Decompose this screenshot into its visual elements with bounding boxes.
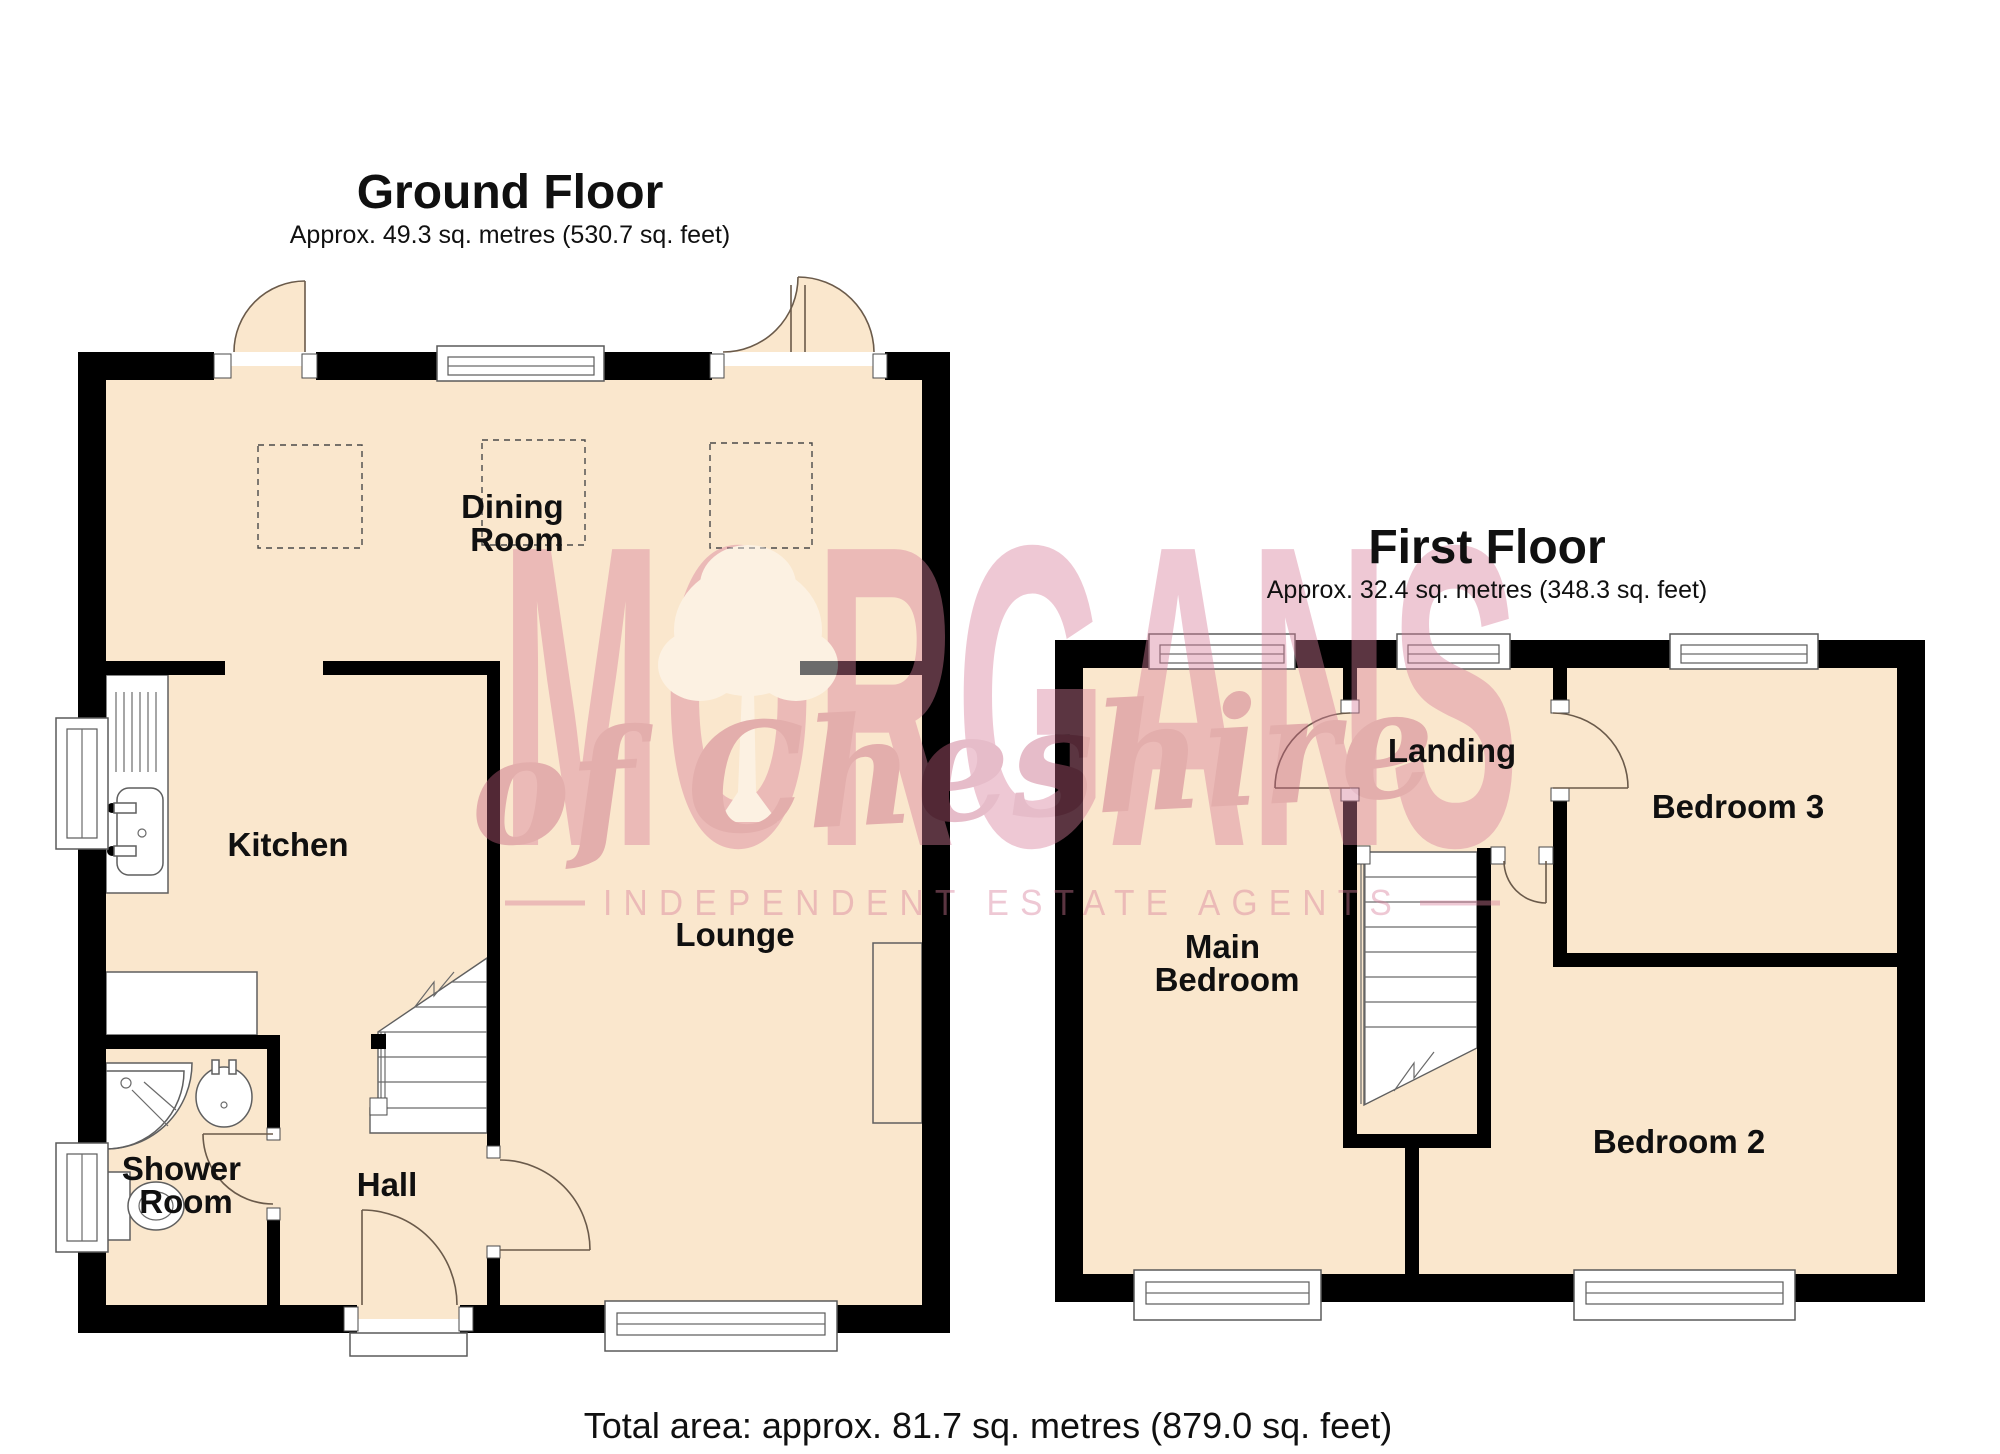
room-label-kitchen: Kitchen: [227, 826, 348, 863]
room-label-shower-room: Shower Room: [122, 1150, 250, 1220]
window: [1134, 1270, 1321, 1320]
window: [1574, 1270, 1795, 1320]
stair-newel-post: [371, 1034, 386, 1049]
first-floor-subtitle: Approx. 32.4 sq. metres (348.3 sq. feet): [1267, 576, 1708, 604]
window: [1670, 634, 1818, 669]
room-label-hall: Hall: [357, 1166, 418, 1203]
ground-floor-title: Ground Floor: [357, 166, 664, 219]
watermark: MORGANS of Cheshire INDEPENDENT ESTATE A…: [466, 457, 1520, 937]
window: [605, 1301, 837, 1351]
kitchen-sink-unit: [106, 675, 168, 893]
ground-floor-subtitle: Approx. 49.3 sq. metres (530.7 sq. feet): [290, 221, 731, 249]
room-label-bedroom-2: Bedroom 2: [1593, 1123, 1765, 1160]
kitchen-counter: [106, 972, 257, 1035]
floorplan-page: MORGANS of Cheshire INDEPENDENT ESTATE A…: [0, 0, 2000, 1454]
front-door-step: [350, 1333, 467, 1356]
patio-doors-swing: [723, 277, 874, 352]
window: [56, 1143, 108, 1252]
room-label-lounge: Lounge: [675, 916, 794, 953]
dining-door-swing: [234, 281, 305, 352]
total-area-caption: Total area: approx. 81.7 sq. metres (879…: [584, 1405, 1392, 1446]
sink-basin: [117, 788, 163, 875]
room-label-dining-room: Dining Room: [461, 488, 573, 558]
window: [437, 346, 604, 381]
room-label-landing: Landing: [1388, 732, 1516, 769]
first-floor-title: First Floor: [1368, 521, 1605, 574]
window: [56, 718, 108, 849]
room-label-bedroom-3: Bedroom 3: [1652, 788, 1824, 825]
